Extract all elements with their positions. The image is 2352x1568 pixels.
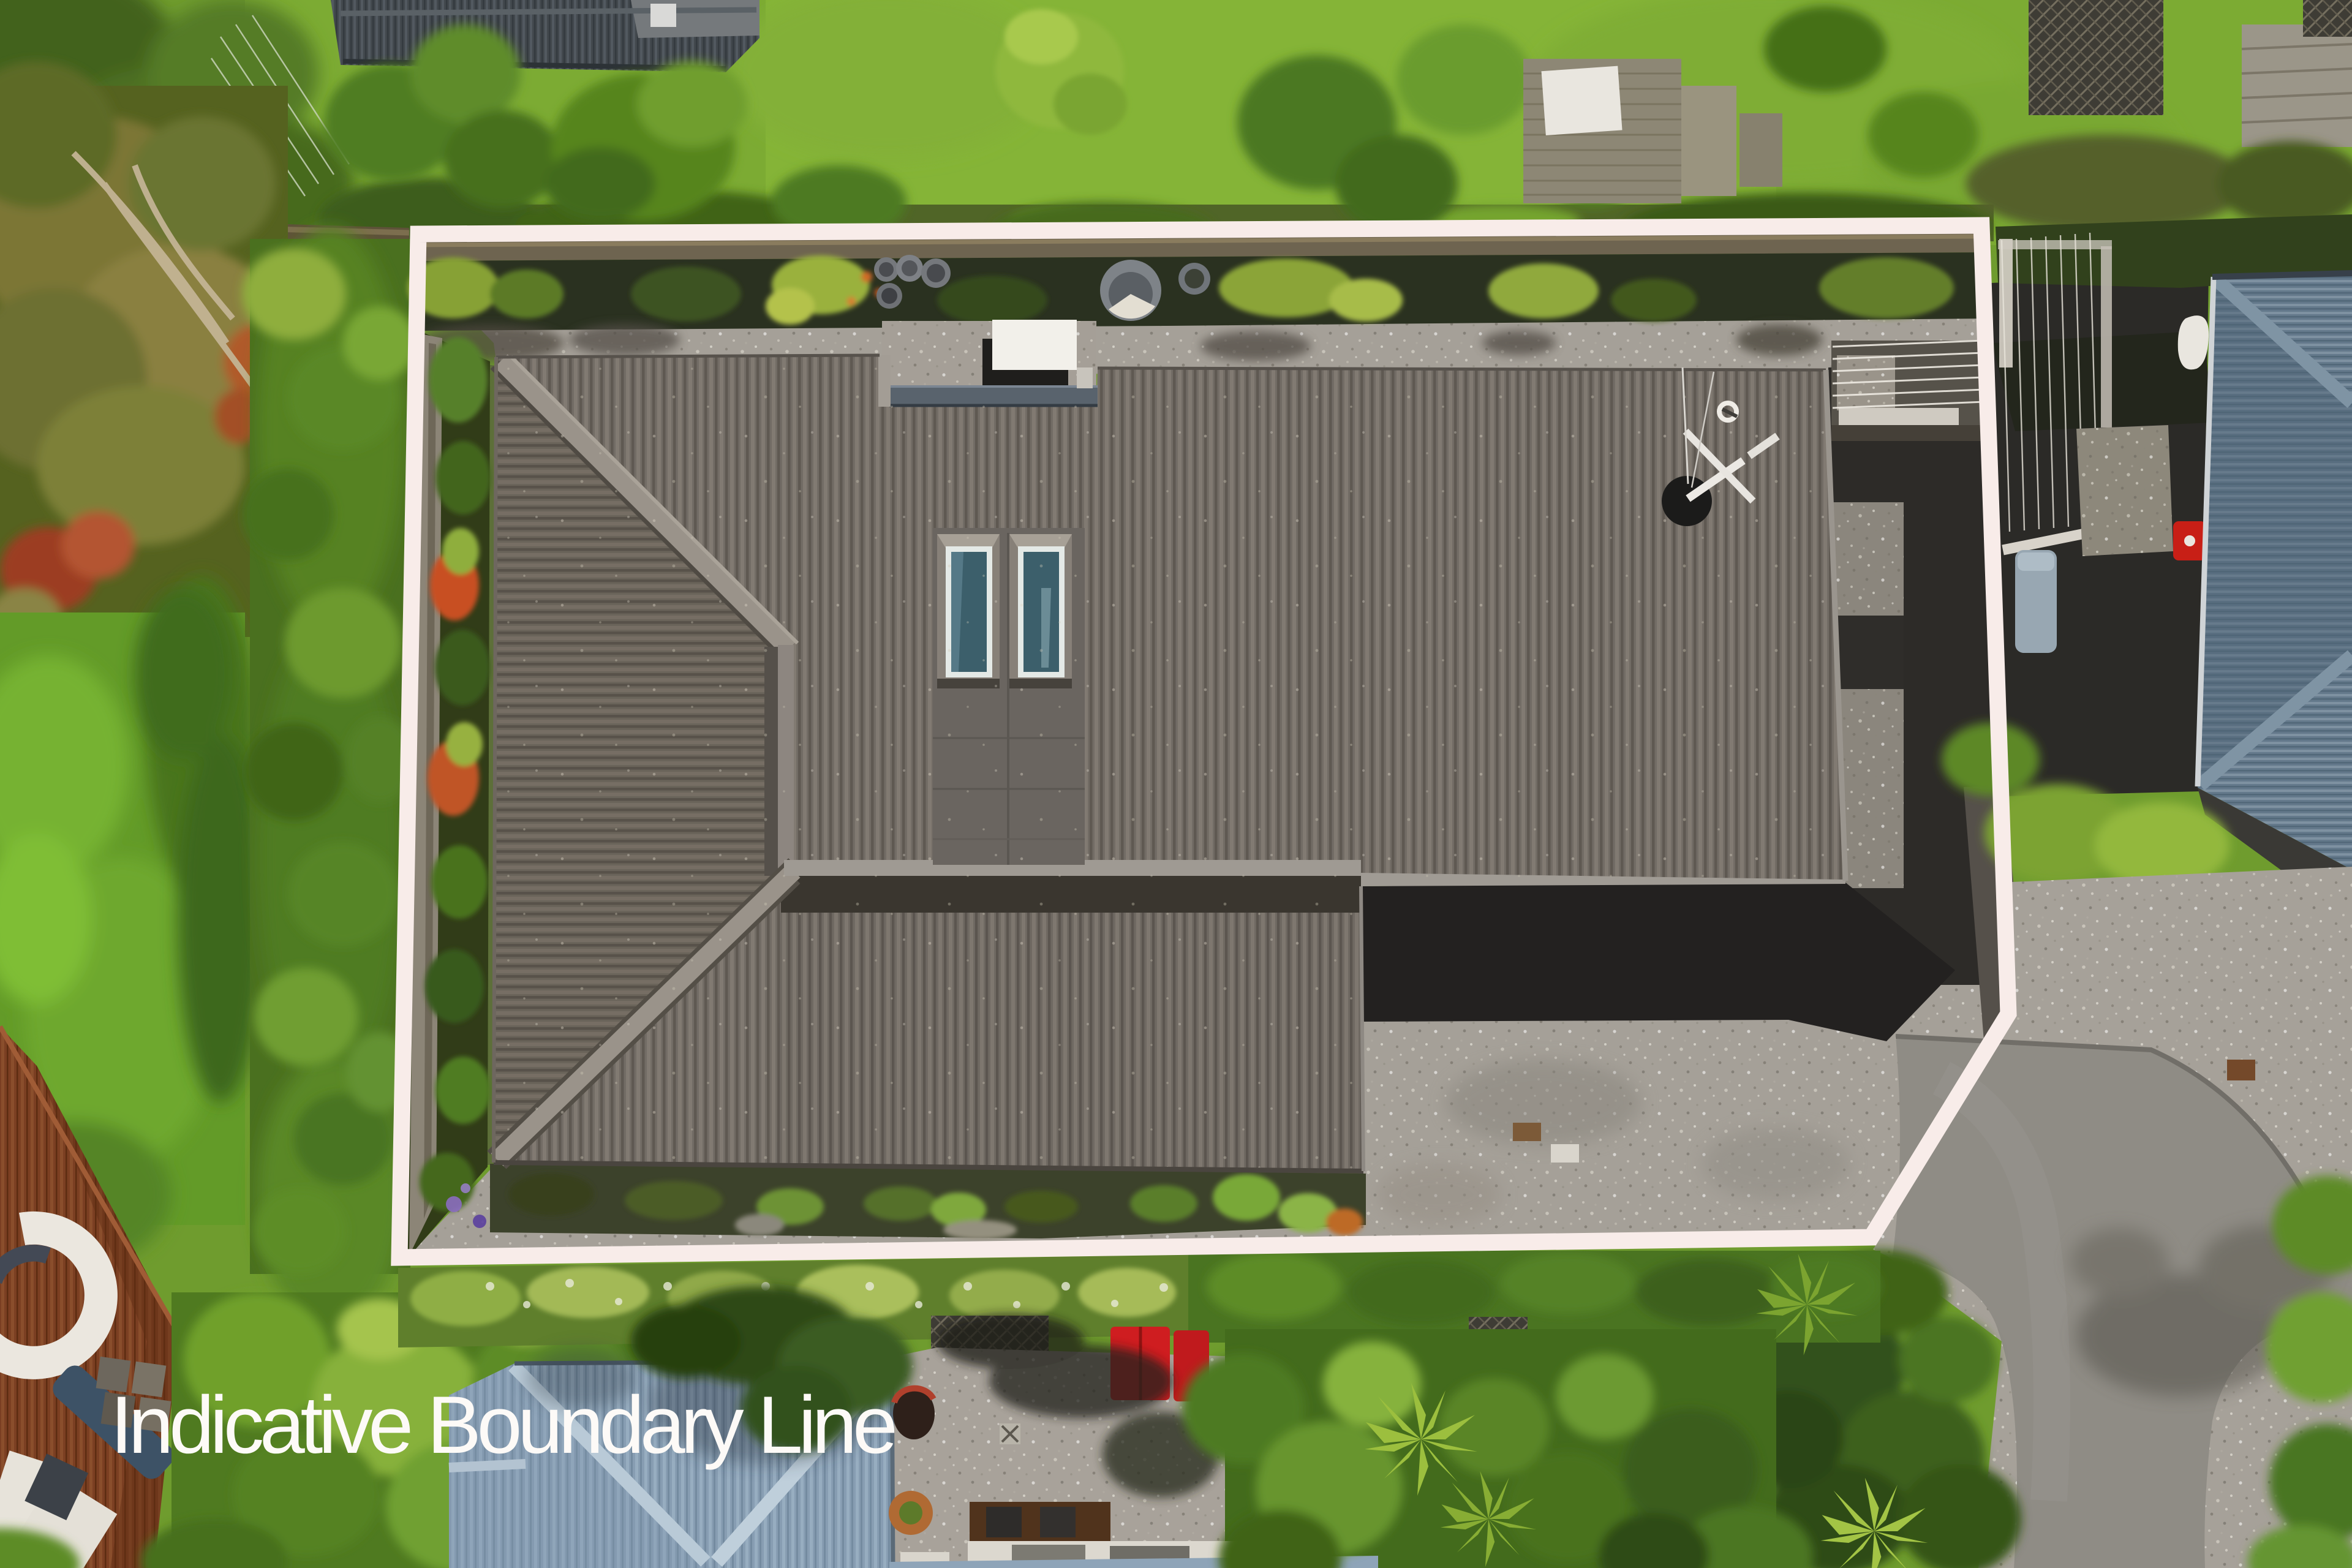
svg-text:Indicative Boundary Line: Indicative Boundary Line — [110, 1380, 898, 1471]
